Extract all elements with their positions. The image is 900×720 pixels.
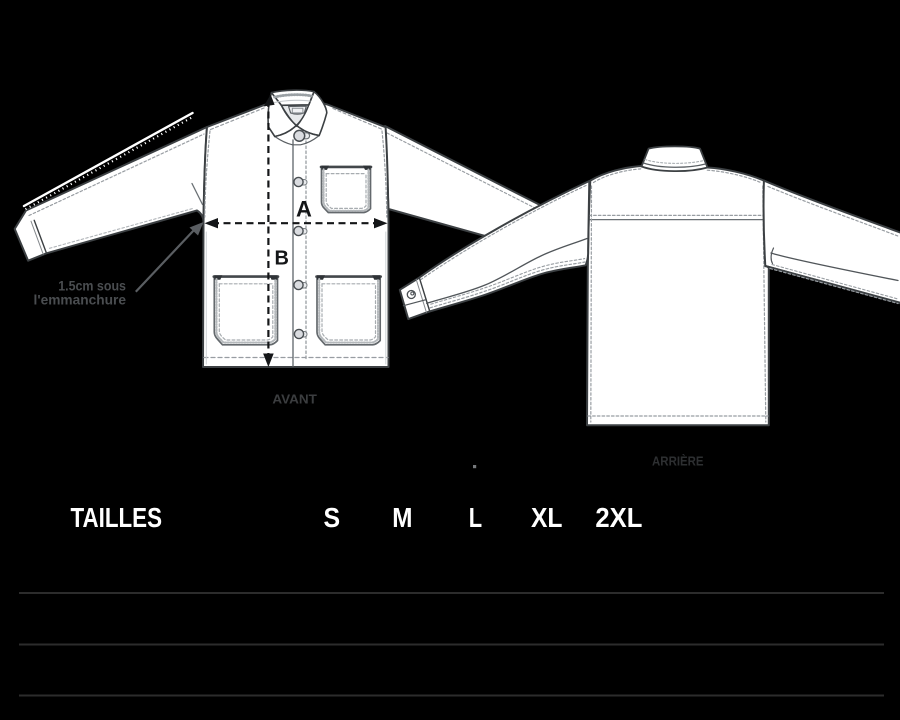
svg-text:2XL: 2XL: [595, 502, 642, 533]
svg-text:S: S: [324, 502, 341, 533]
svg-text:A: A: [296, 197, 312, 222]
svg-text:L: L: [469, 502, 482, 533]
svg-text:M: M: [392, 502, 412, 533]
svg-text:B: B: [275, 248, 289, 270]
svg-text:AVANT: AVANT: [272, 392, 317, 407]
svg-text:1.5cm sous: 1.5cm sous: [58, 278, 126, 293]
svg-text:XL: XL: [531, 502, 563, 533]
svg-text:ARRIÈRE: ARRIÈRE: [652, 454, 704, 469]
svg-text:TAILLES: TAILLES: [71, 502, 163, 533]
svg-text:l'emmanchure: l'emmanchure: [34, 293, 127, 308]
